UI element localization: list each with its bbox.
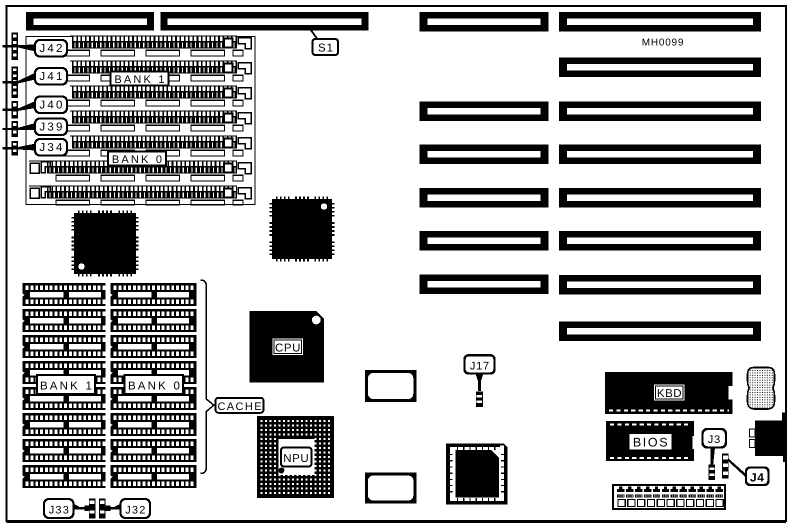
svg-text:J39: J39 bbox=[39, 122, 64, 134]
svg-text:BANK 0: BANK 0 bbox=[128, 381, 182, 393]
svg-text:MH0099: MH0099 bbox=[642, 37, 685, 48]
svg-text:J33: J33 bbox=[49, 504, 70, 516]
svg-text:NPU: NPU bbox=[283, 453, 309, 465]
svg-text:S1: S1 bbox=[318, 42, 334, 54]
svg-text:KBD: KBD bbox=[657, 388, 682, 400]
svg-text:J42: J42 bbox=[39, 43, 64, 55]
svg-text:BANK 0: BANK 0 bbox=[112, 154, 164, 166]
svg-text:BIOS: BIOS bbox=[633, 436, 669, 450]
svg-text:J40: J40 bbox=[39, 100, 64, 112]
svg-text:J4: J4 bbox=[750, 470, 764, 484]
svg-text:J32: J32 bbox=[125, 504, 146, 516]
svg-text:CPU: CPU bbox=[275, 342, 301, 354]
svg-text:J41: J41 bbox=[39, 71, 64, 83]
svg-text:J34: J34 bbox=[39, 142, 64, 154]
svg-text:J3: J3 bbox=[708, 434, 721, 446]
svg-text:BANK 1: BANK 1 bbox=[40, 381, 94, 393]
svg-text:BANK 1: BANK 1 bbox=[114, 74, 166, 86]
svg-text:CACHE: CACHE bbox=[217, 401, 263, 413]
svg-text:J17: J17 bbox=[470, 360, 490, 372]
